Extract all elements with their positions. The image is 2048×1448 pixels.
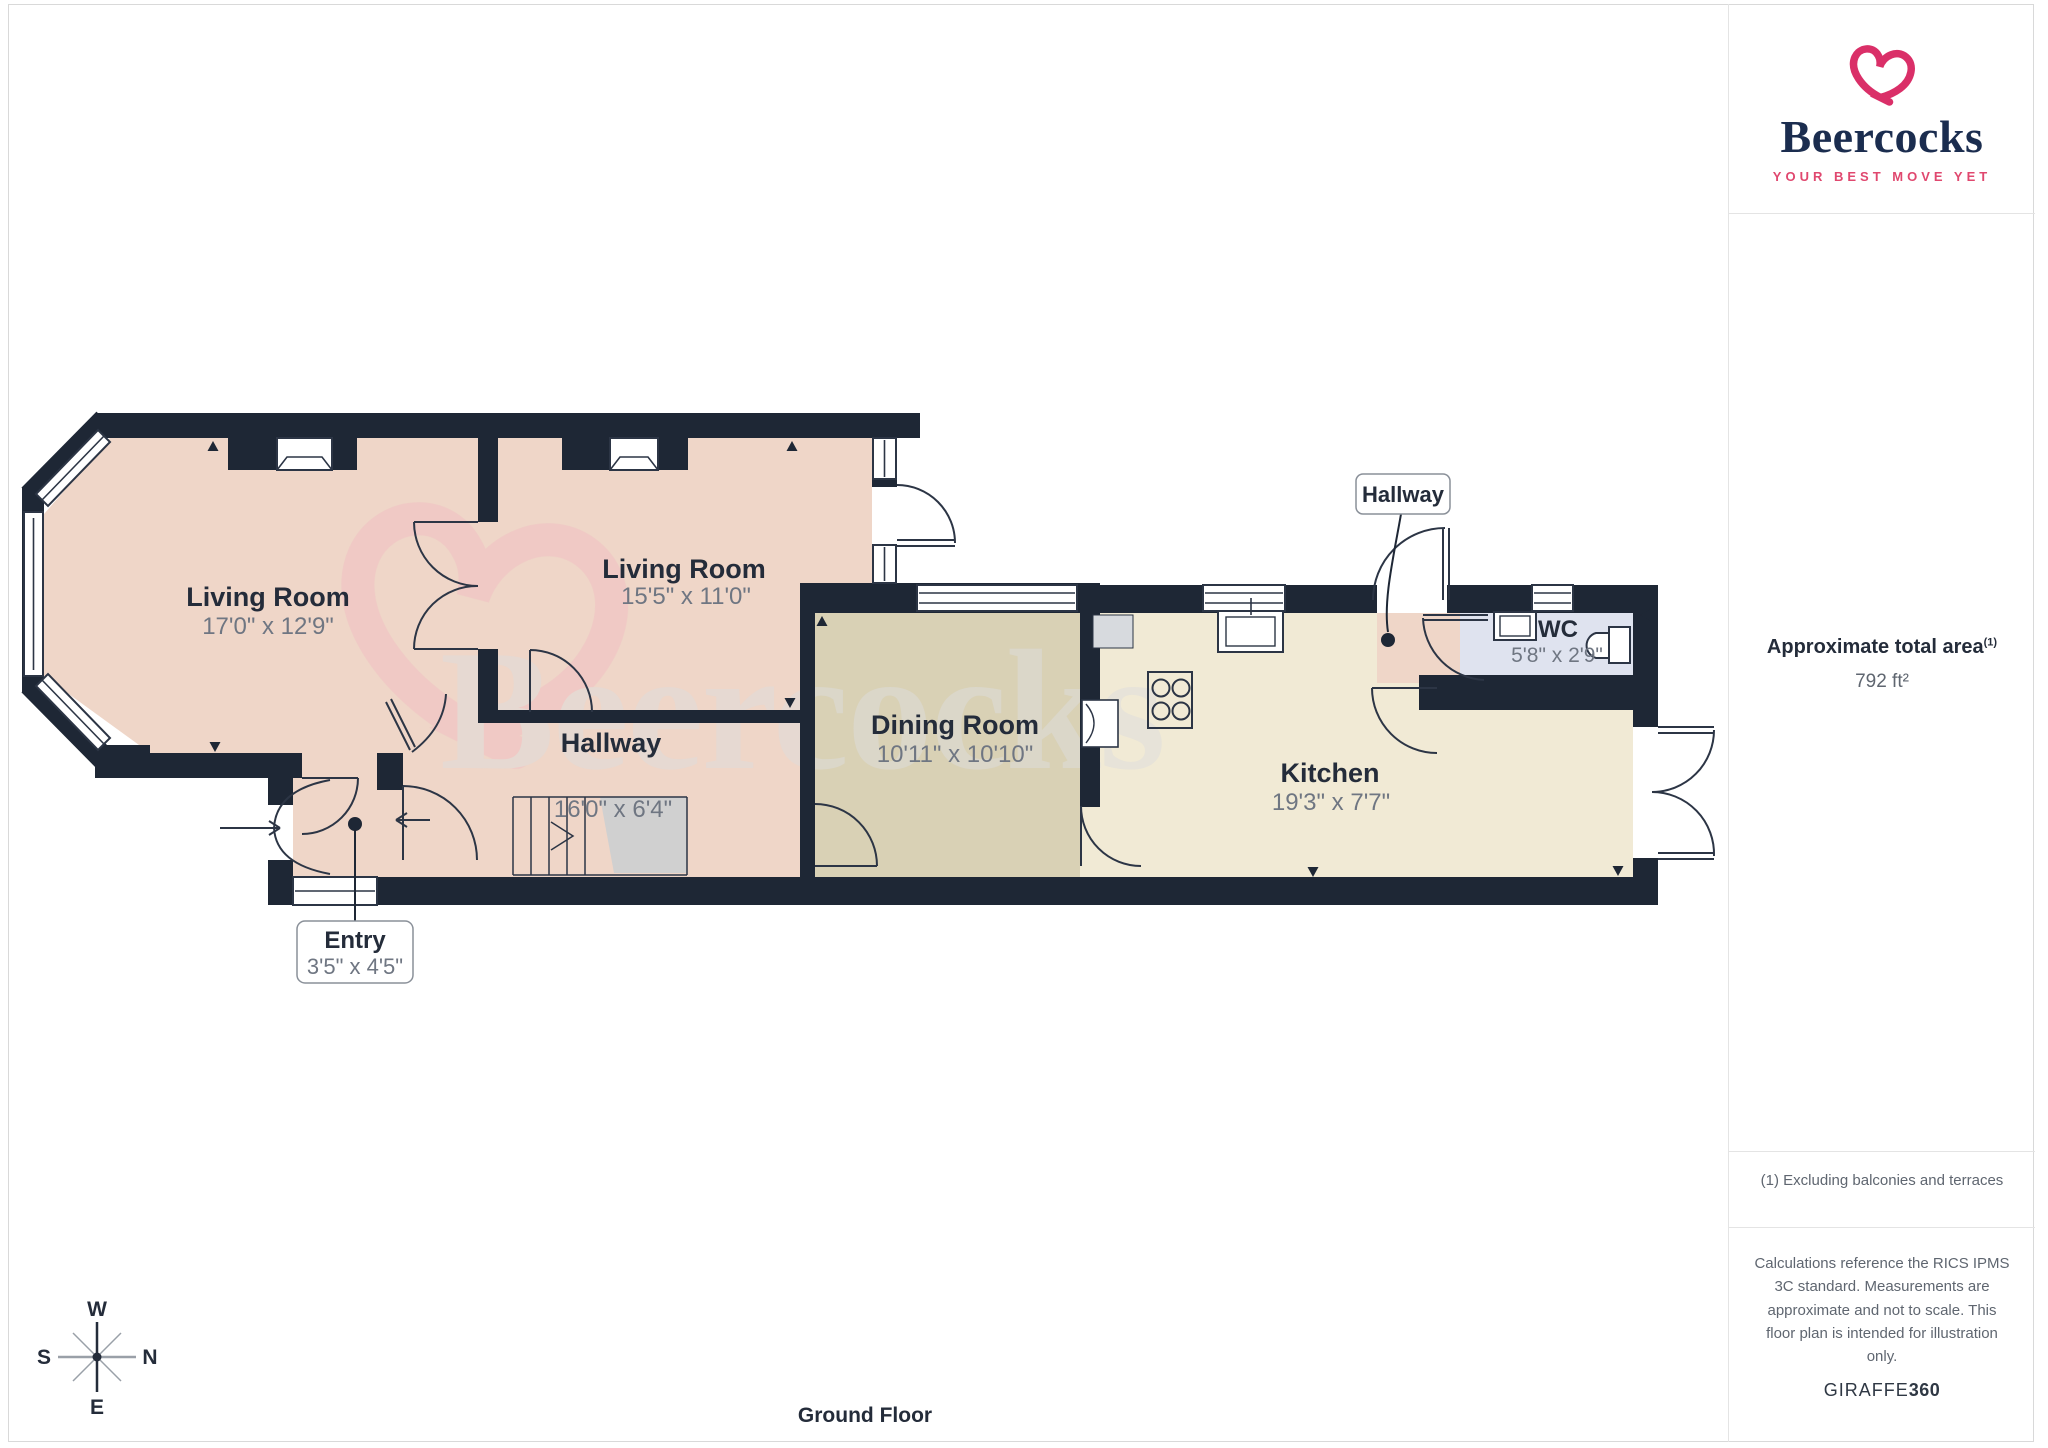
- total-area-footnote-marker: (1): [1984, 636, 1997, 648]
- brand-tagline: YOUR BEST MOVE YET: [1729, 169, 2035, 184]
- sidebar: Beercocks YOUR BEST MOVE YET Approximate…: [1728, 4, 2035, 1442]
- disclaimer-text: Calculations reference the RICS IPMS 3C …: [1753, 1252, 2011, 1368]
- window-dining: [917, 585, 1077, 611]
- label-living-room-2: Living Room: [602, 554, 766, 584]
- label-dining-room: Dining Room: [871, 710, 1039, 740]
- door-side-exterior: [897, 485, 955, 546]
- hallway-callout-label: Hallway: [1362, 482, 1445, 507]
- fridge-icon: [1093, 615, 1133, 648]
- total-area-title: Approximate total area: [1767, 636, 1984, 658]
- entry-arrow-right: [220, 821, 280, 835]
- label-wc: WC: [1538, 616, 1578, 643]
- dims-living-room-1: 17'0" x 12'9": [202, 613, 334, 640]
- window-wc: [1532, 585, 1573, 611]
- upper-hallway-floor: [1377, 613, 1460, 683]
- dims-wc: 5'8" x 2'9": [1511, 644, 1603, 667]
- entry-callout-dims: 3'5" x 4'5": [307, 954, 403, 979]
- brand-name: Beercocks: [1729, 114, 2035, 160]
- entry-callout-label: Entry: [324, 927, 386, 954]
- dims-kitchen: 19'3" x 7'7": [1272, 789, 1390, 816]
- brand-logo: Beercocks YOUR BEST MOVE YET: [1729, 36, 2035, 184]
- provider-suffix: 360: [1909, 1380, 1941, 1400]
- door-kitchen-french-top: [1652, 727, 1714, 792]
- compass-n: N: [142, 1346, 157, 1369]
- door-gap-fill: [302, 753, 377, 778]
- hallway-callout-dot: [1381, 633, 1395, 647]
- label-living-room-1: Living Room: [186, 582, 350, 612]
- compass: W S N E: [37, 1298, 158, 1419]
- window-kitchen: [1203, 585, 1285, 611]
- label-kitchen: Kitchen: [1280, 758, 1379, 788]
- dims-hallway: 16'0" x 6'4": [554, 796, 672, 823]
- heart-icon: [1843, 36, 1921, 108]
- oven-icon: [1082, 700, 1118, 747]
- provider-logo: GIRAFFE360: [1729, 1380, 2035, 1401]
- entry-callout-dot: [348, 817, 362, 831]
- floor-label: Ground Floor: [0, 1404, 1730, 1428]
- total-area-value: 792 ft²: [1729, 671, 2035, 693]
- label-hallway: Hallway: [561, 728, 662, 758]
- fireplace-2: [610, 438, 658, 470]
- provider-name: GIRAFFE: [1824, 1380, 1909, 1400]
- sidebar-divider-1: [1729, 213, 2035, 214]
- compass-s: S: [37, 1346, 51, 1369]
- compass-w: W: [87, 1298, 107, 1321]
- dims-dining-room: 10'11" x 10'10": [877, 741, 1034, 768]
- area-footnote: (1) Excluding balconies and terraces: [1739, 1172, 2025, 1189]
- sidebar-divider-2: [1729, 1151, 2035, 1152]
- fireplace-1: [277, 438, 332, 470]
- sidebar-divider-3: [1729, 1227, 2035, 1228]
- door-kitchen-french-bottom: [1652, 792, 1714, 859]
- dims-living-room-2: 15'5" x 11'0": [621, 583, 751, 610]
- toilet-cistern-icon: [1609, 627, 1630, 663]
- total-area-block: Approximate total area(1) 792 ft²: [1729, 636, 2035, 693]
- floor-plan: Beercocks: [0, 0, 1730, 1448]
